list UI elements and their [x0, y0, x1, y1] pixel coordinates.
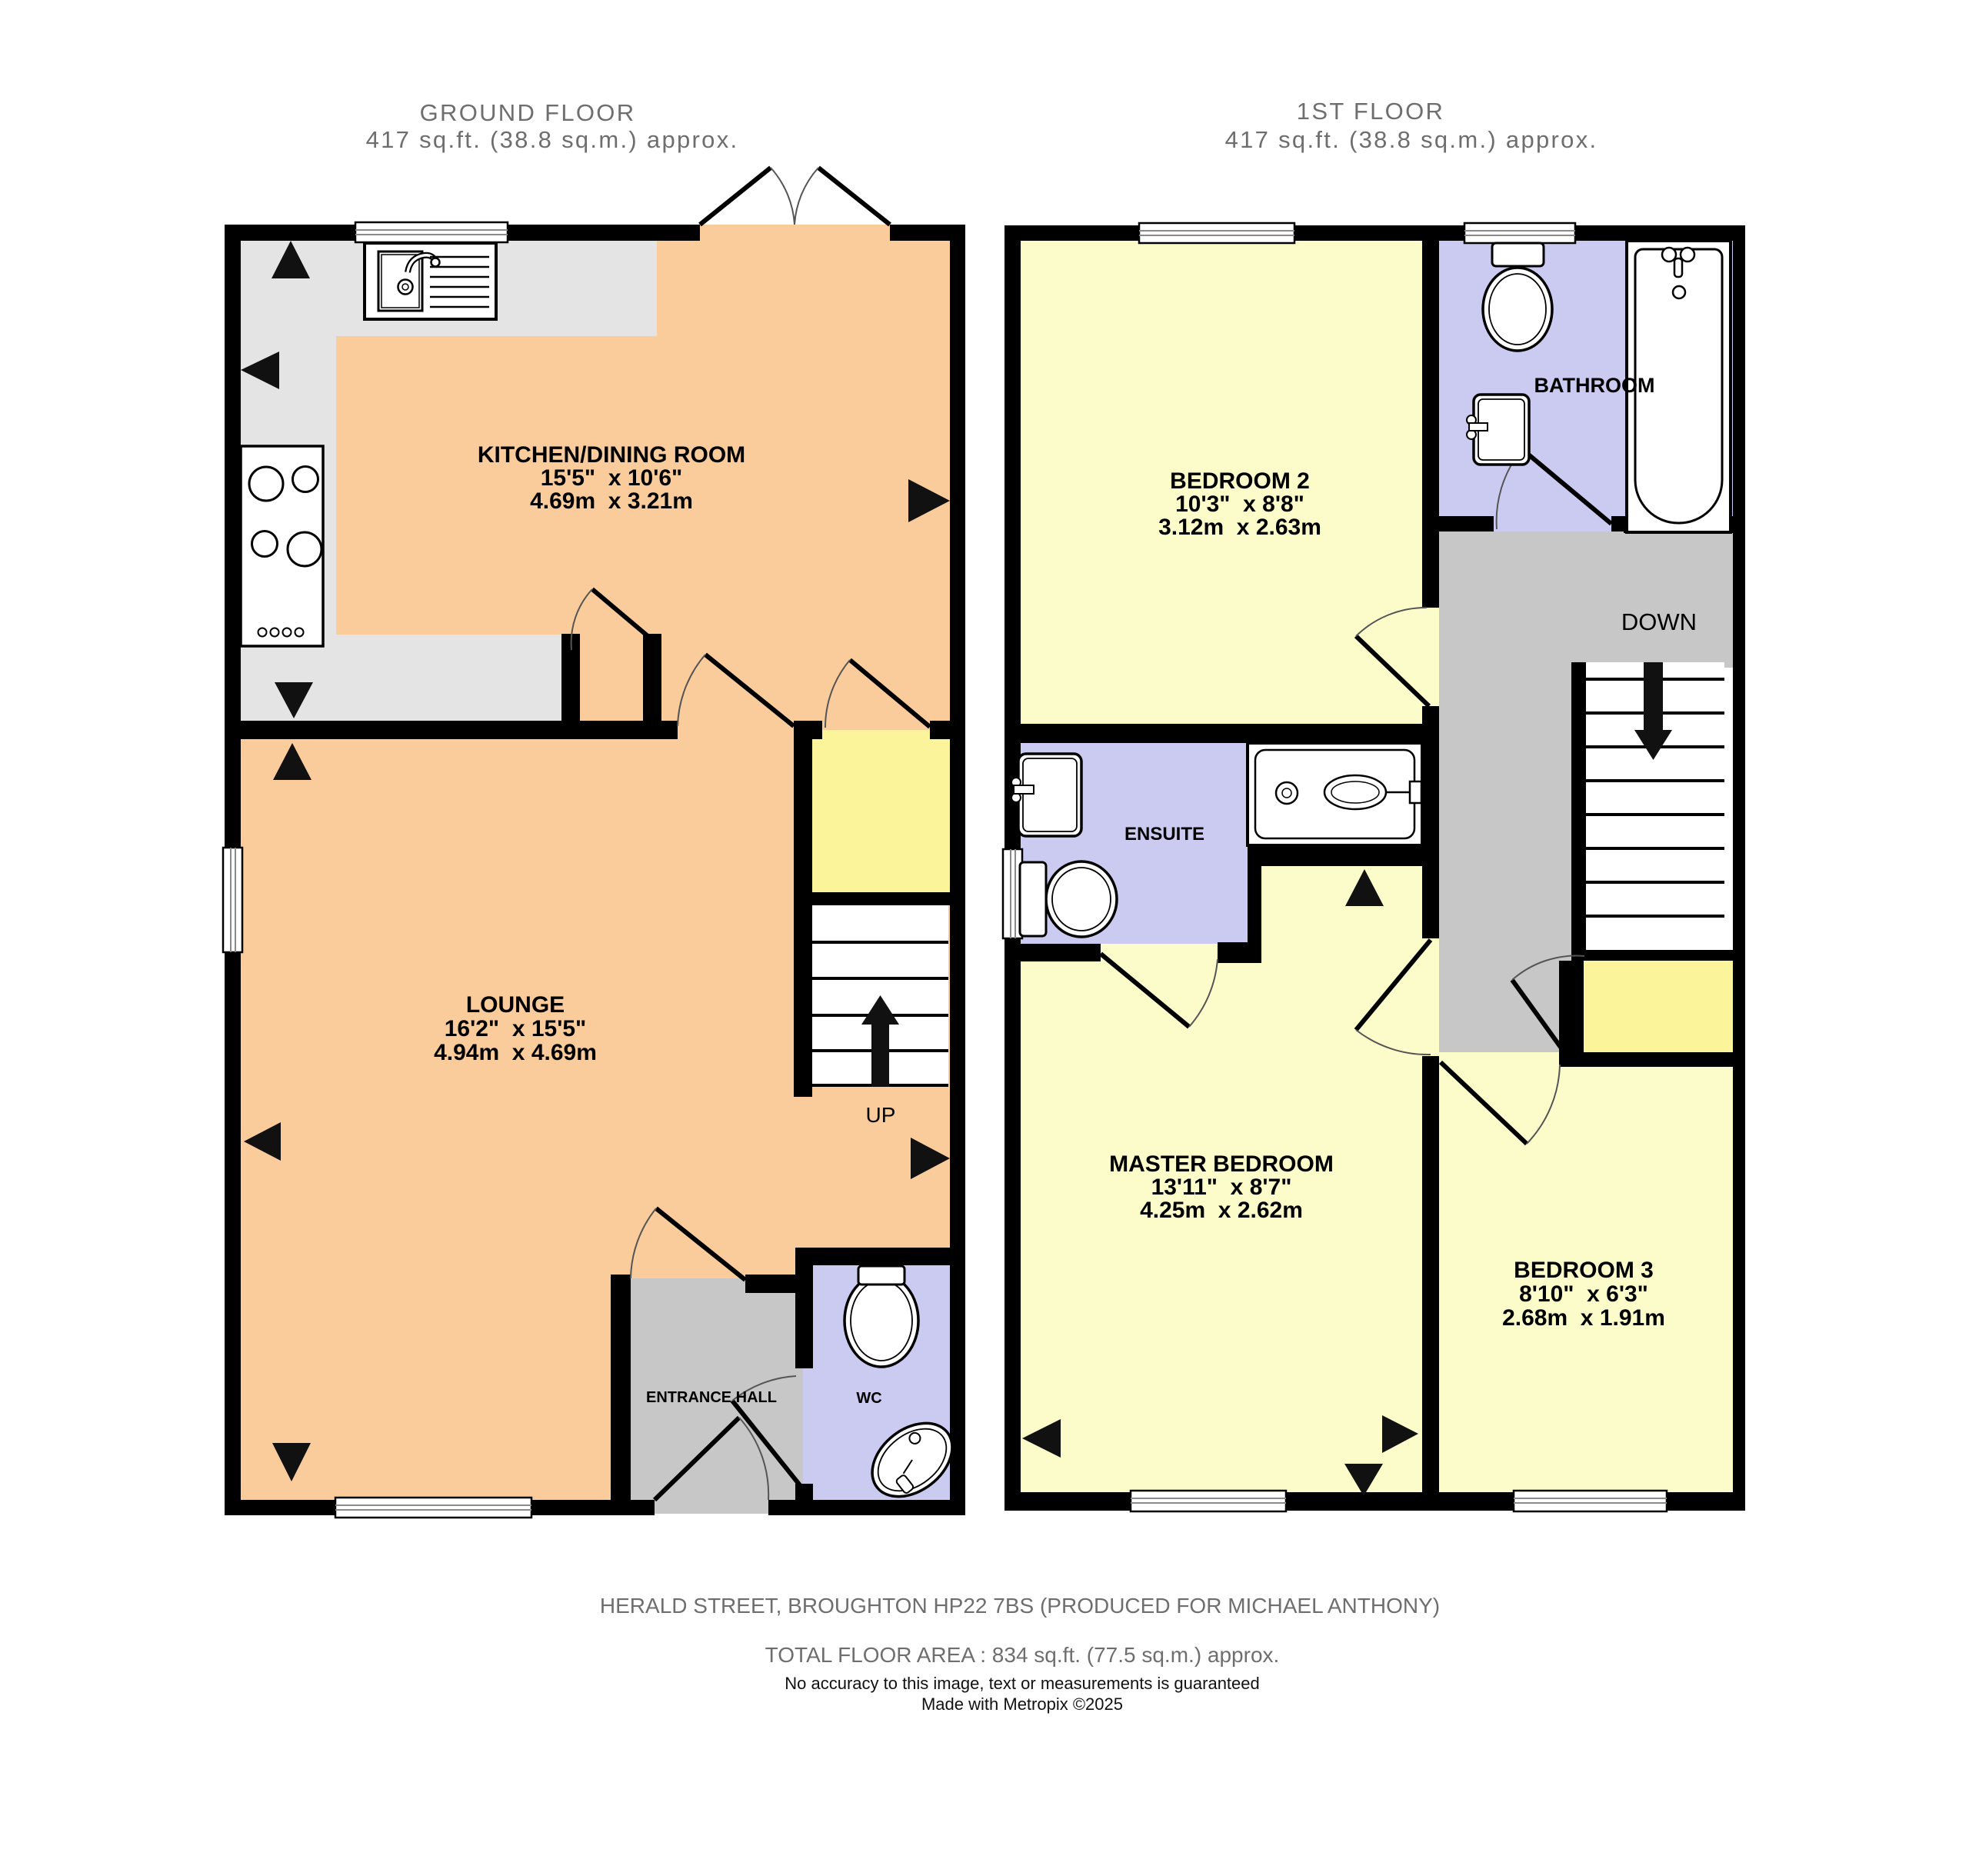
- svg-text:HERALD STREET, BROUGHTON HP22: HERALD STREET, BROUGHTON HP22 7BS (PRODU…: [600, 1594, 1440, 1618]
- svg-text:Made with Metropix ©2025: Made with Metropix ©2025: [921, 1694, 1123, 1714]
- svg-text:417 sq.ft. (38.8 sq.m.) approx: 417 sq.ft. (38.8 sq.m.) approx.: [366, 126, 739, 153]
- svg-text:BEDROOM 2: BEDROOM 2: [1170, 468, 1310, 494]
- svg-text:8'10" x 6'3": 8'10" x 6'3": [1519, 1281, 1648, 1307]
- svg-text:WC: WC: [856, 1390, 881, 1407]
- svg-text:MASTER BEDROOM: MASTER BEDROOM: [1109, 1151, 1334, 1177]
- svg-text:BATHROOM: BATHROOM: [1534, 374, 1655, 397]
- svg-text:KITCHEN/DINING ROOM: KITCHEN/DINING ROOM: [478, 442, 745, 468]
- svg-text:TOTAL FLOOR AREA : 834 sq.ft.: TOTAL FLOOR AREA : 834 sq.ft. (77.5 sq.m…: [765, 1643, 1280, 1667]
- svg-text:3.12m x 2.63m: 3.12m x 2.63m: [1158, 515, 1321, 540]
- svg-text:LOUNGE: LOUNGE: [466, 992, 565, 1018]
- svg-text:16'2" x 15'5": 16'2" x 15'5": [445, 1016, 587, 1041]
- svg-text:GROUND FLOOR: GROUND FLOOR: [420, 99, 636, 126]
- svg-text:1ST FLOOR: 1ST FLOOR: [1297, 98, 1444, 125]
- svg-text:4.69m x 3.21m: 4.69m x 3.21m: [530, 488, 693, 514]
- svg-text:No accuracy to this image, tex: No accuracy to this image, text or measu…: [785, 1674, 1260, 1693]
- svg-text:2.68m x 1.91m: 2.68m x 1.91m: [1502, 1305, 1665, 1331]
- svg-text:13'11" x 8'7": 13'11" x 8'7": [1151, 1175, 1292, 1200]
- svg-text:BEDROOM 3: BEDROOM 3: [1514, 1258, 1654, 1283]
- svg-text:417 sq.ft. (38.8 sq.m.) approx: 417 sq.ft. (38.8 sq.m.) approx.: [1225, 126, 1598, 153]
- svg-text:DOWN: DOWN: [1621, 608, 1697, 635]
- svg-text:ENTRANCE HALL: ENTRANCE HALL: [646, 1389, 777, 1406]
- svg-text:4.25m x 2.62m: 4.25m x 2.62m: [1140, 1198, 1303, 1223]
- svg-text:15'5" x 10'6": 15'5" x 10'6": [541, 465, 683, 491]
- svg-text:ENSUITE: ENSUITE: [1124, 824, 1204, 845]
- svg-text:10'3" x 8'8": 10'3" x 8'8": [1175, 491, 1304, 517]
- svg-text:UP: UP: [866, 1103, 896, 1127]
- svg-text:4.94m x 4.69m: 4.94m x 4.69m: [434, 1040, 597, 1065]
